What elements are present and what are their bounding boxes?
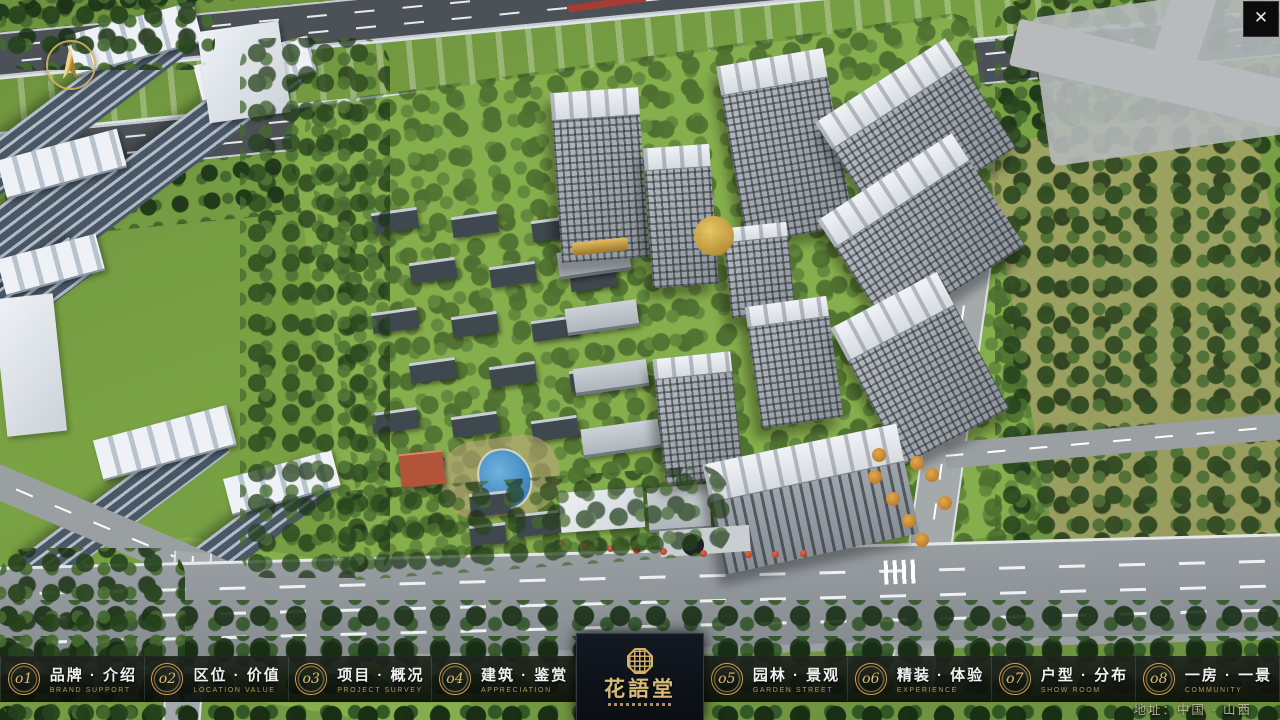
- red-accent: [772, 551, 779, 558]
- logo-name: 花語堂: [604, 678, 676, 699]
- menu-text: 精装 · 体验 EXPERIENCE: [897, 664, 984, 694]
- autumn-tree: [872, 448, 886, 462]
- menu-sublabel: COMMUNITY: [1185, 687, 1243, 694]
- autumn-tree: [902, 514, 916, 528]
- building: [398, 450, 445, 488]
- masterplan-aerial-render[interactable]: [0, 0, 1280, 720]
- menu-sublabel: LOCATION VALUE: [193, 687, 275, 694]
- menu-badge: o4: [439, 663, 471, 695]
- highrise-tower: [550, 87, 650, 263]
- highrise-tower: [745, 296, 843, 428]
- badge-number: o1: [15, 671, 32, 687]
- menu-item-interior[interactable]: o6 精装 · 体验 EXPERIENCE: [848, 657, 992, 701]
- presentation-window: ✕ o1 品牌 · 介绍 BRAND SUPPORT o2 区位 · 价值 LO…: [0, 0, 1280, 720]
- red-accent: [800, 550, 807, 557]
- building: [0, 293, 67, 437]
- tree-cluster: [0, 0, 215, 70]
- menu-label: 一房 · 一景: [1185, 664, 1272, 685]
- badge-number: o7: [1006, 671, 1023, 687]
- red-accent: [745, 551, 752, 558]
- menu-item-location[interactable]: o2 区位 · 价值 LOCATION VALUE: [145, 657, 289, 701]
- menu-text: 户型 · 分布 SHOW ROOM: [1041, 664, 1128, 694]
- menu-sublabel: GARDEN STREET: [753, 687, 833, 694]
- autumn-tree: [910, 456, 924, 470]
- close-icon: ✕: [1254, 8, 1268, 27]
- menu-sublabel: EXPERIENCE: [897, 687, 958, 694]
- menu-badge: o8: [1143, 663, 1175, 695]
- badge-number: o8: [1150, 671, 1167, 687]
- menu-text: 区位 · 价值 LOCATION VALUE: [193, 664, 280, 694]
- crosswalk: [884, 559, 919, 584]
- badge-number: o3: [303, 671, 320, 687]
- menu-sublabel: APPRECIATION: [481, 687, 552, 694]
- autumn-tree: [886, 492, 900, 506]
- menu-item-brand[interactable]: o1 品牌 · 介绍 BRAND SUPPORT: [0, 657, 145, 701]
- badge-number: o6: [862, 671, 879, 687]
- project-address: 地址：中国 · 山西: [1133, 699, 1252, 718]
- autumn-tree: [868, 470, 882, 484]
- autumn-tree: [925, 468, 939, 482]
- badge-number: o5: [718, 671, 735, 687]
- menu-item-garden[interactable]: o5 园林 · 景观 GARDEN STREET: [704, 657, 848, 701]
- menu-text: 建筑 · 鉴赏 APPRECIATION: [481, 664, 568, 694]
- badge-number: o2: [159, 671, 176, 687]
- menu-label: 建筑 · 鉴赏: [481, 664, 568, 685]
- menu-text: 项目 · 概况 PROJECT SURVEY: [337, 664, 424, 694]
- menu-sublabel: SHOW ROOM: [1041, 687, 1101, 694]
- menu-badge: o7: [999, 663, 1031, 695]
- menu-sublabel: PROJECT SURVEY: [337, 687, 423, 694]
- bottom-nav: o1 品牌 · 介绍 BRAND SUPPORT o2 区位 · 价值 LOCA…: [0, 656, 1280, 702]
- compass-icon: [46, 40, 96, 90]
- menu-text: 一房 · 一景 COMMUNITY: [1185, 664, 1272, 694]
- nav-group-left: o1 品牌 · 介绍 BRAND SUPPORT o2 区位 · 价值 LOCA…: [0, 657, 576, 701]
- menu-label: 精装 · 体验: [897, 664, 984, 685]
- menu-badge: o5: [711, 663, 743, 695]
- menu-label: 户型 · 分布: [1041, 664, 1128, 685]
- menu-item-project[interactable]: o3 项目 · 概况 PROJECT SURVEY: [289, 657, 433, 701]
- menu-badge: o1: [8, 663, 40, 695]
- menu-item-floorplan[interactable]: o7 户型 · 分布 SHOW ROOM: [992, 657, 1136, 701]
- menu-sublabel: BRAND SUPPORT: [50, 687, 131, 694]
- close-button[interactable]: ✕: [1243, 1, 1279, 37]
- menu-label: 园林 · 景观: [753, 664, 840, 685]
- gold-landmark: [694, 216, 734, 256]
- menu-label: 品牌 · 介绍: [50, 664, 137, 685]
- menu-label: 区位 · 价值: [193, 664, 280, 685]
- logo-subtext-decoration: [608, 703, 672, 706]
- autumn-tree: [915, 533, 929, 547]
- menu-item-architecture[interactable]: o4 建筑 · 鉴赏 APPRECIATION: [432, 657, 576, 701]
- menu-label: 项目 · 概况: [337, 664, 424, 685]
- autumn-tree: [938, 496, 952, 510]
- menu-text: 园林 · 景观 GARDEN STREET: [753, 664, 840, 694]
- menu-badge: o3: [295, 663, 327, 695]
- logo-panel[interactable]: 花語堂: [576, 633, 704, 720]
- compass-needle-icon: [58, 44, 82, 84]
- nav-group-right: o5 园林 · 景观 GARDEN STREET o6 精装 · 体验 EXPE…: [704, 657, 1280, 701]
- menu-badge: o2: [151, 663, 183, 695]
- logo-seal-icon: [627, 648, 653, 674]
- menu-badge: o6: [855, 663, 887, 695]
- badge-number: o4: [446, 671, 463, 687]
- logo-seal-pattern: [629, 650, 651, 672]
- menu-text: 品牌 · 介绍 BRAND SUPPORT: [50, 664, 137, 694]
- menu-item-view[interactable]: o8 一房 · 一景 COMMUNITY: [1136, 657, 1280, 701]
